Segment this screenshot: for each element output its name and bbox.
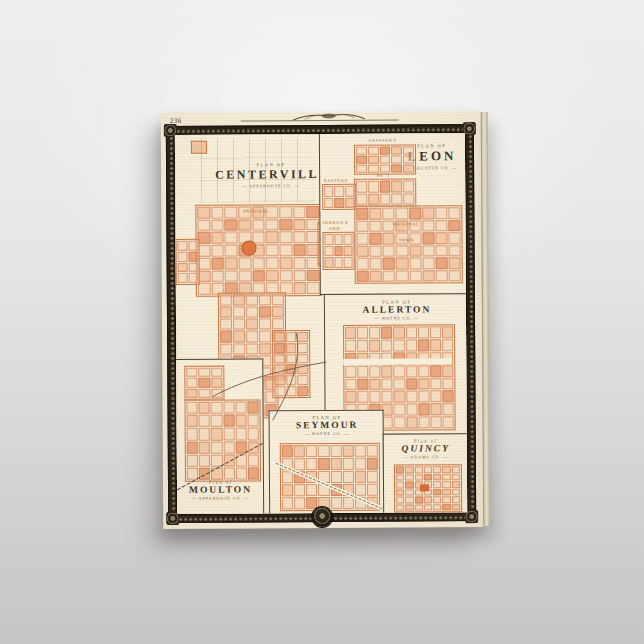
town-block — [325, 257, 334, 268]
town-block — [422, 207, 434, 219]
town-block — [452, 489, 460, 496]
town-block — [393, 327, 404, 339]
town-block — [422, 270, 434, 282]
town-block — [357, 378, 368, 390]
town-block — [406, 326, 417, 338]
town-block — [396, 270, 408, 282]
town-block — [220, 319, 232, 330]
town-block — [396, 489, 404, 496]
town-block — [403, 155, 414, 163]
town-block — [274, 343, 285, 353]
town-block — [286, 343, 297, 353]
county-label: APPANOOSE CO. — [215, 183, 327, 189]
town-block — [418, 404, 429, 416]
town-block — [211, 428, 222, 440]
town-block — [280, 244, 293, 256]
town-block — [357, 270, 369, 282]
town-block — [211, 245, 224, 257]
allerton-title: PLAN OF ALLERTON WAYNE CO. — [345, 299, 449, 321]
town-block — [259, 343, 271, 354]
town-block — [406, 391, 417, 403]
town-block — [356, 208, 368, 220]
town-block — [430, 339, 441, 351]
town-block — [369, 327, 380, 339]
town-block — [382, 365, 393, 377]
town-block — [225, 219, 238, 231]
town-block — [233, 294, 245, 305]
town-block — [294, 445, 305, 457]
town-block — [369, 340, 380, 352]
town-block — [370, 270, 382, 282]
town-block — [211, 219, 224, 231]
product-photo-backdrop: { "colors": { "paper": "#f3ecd6", "plat_… — [0, 0, 644, 644]
town-block — [448, 245, 460, 257]
town-block — [422, 245, 434, 257]
town-block — [318, 445, 329, 457]
town-block — [370, 378, 381, 390]
town-block — [343, 471, 354, 483]
town-block — [342, 458, 353, 470]
town-name: QUINCY — [388, 443, 464, 453]
panel-leon: PLAN OF LEON DECATUR CO. SHAFFER'S No. 1… — [319, 133, 466, 295]
town-block — [297, 343, 308, 353]
town-block — [335, 186, 344, 197]
plat-grid-centerville-west — [176, 239, 200, 285]
town-block — [392, 181, 403, 193]
town-block — [409, 207, 421, 219]
town-block — [424, 466, 432, 473]
town-block — [380, 181, 391, 193]
town-block — [330, 471, 341, 483]
town-block — [187, 428, 198, 440]
town-block — [248, 454, 259, 466]
town-block — [294, 471, 305, 483]
town-block — [433, 504, 441, 511]
town-block — [382, 378, 393, 390]
town-block — [334, 257, 343, 268]
town-block — [442, 403, 453, 415]
town-block — [247, 428, 258, 440]
town-block — [342, 445, 353, 457]
town-block — [396, 497, 404, 504]
town-block — [178, 262, 188, 272]
town-block — [418, 365, 429, 377]
town-block — [452, 504, 460, 511]
addition-label: SHAFFER'S — [354, 137, 412, 142]
town-block — [307, 270, 320, 282]
plat-grid-leon-original-town — [354, 205, 462, 284]
town-block — [259, 294, 271, 305]
town-block — [199, 415, 210, 427]
town-block — [235, 441, 246, 453]
town-block — [448, 207, 460, 219]
plat-grid-leon-eastern — [322, 184, 356, 210]
town-block — [318, 484, 329, 496]
town-block — [343, 497, 354, 509]
town-block — [282, 445, 293, 457]
town-block — [266, 219, 279, 231]
town-block — [442, 474, 450, 481]
town-block — [324, 197, 333, 208]
town-block — [430, 391, 441, 403]
town-block — [235, 428, 246, 440]
town-block — [324, 186, 333, 197]
town-block — [298, 375, 309, 385]
town-block — [394, 417, 405, 429]
town-block — [345, 365, 356, 377]
town-block — [358, 391, 369, 403]
addition-label: JORDAN'S — [320, 220, 350, 225]
town-block — [449, 270, 461, 282]
town-block — [442, 339, 453, 351]
town-block — [415, 496, 423, 503]
town-block — [381, 339, 392, 351]
town-block — [187, 441, 198, 453]
town-block — [199, 441, 210, 453]
town-block — [380, 165, 391, 173]
town-block — [239, 257, 252, 269]
town-block — [396, 207, 408, 219]
town-block — [330, 458, 341, 470]
town-block — [286, 365, 297, 375]
town-block — [246, 294, 258, 305]
town-block — [186, 368, 197, 377]
town-block — [368, 193, 379, 205]
town-block — [280, 270, 293, 282]
town-block — [442, 466, 450, 473]
town-block — [248, 441, 259, 453]
town-block — [294, 484, 305, 496]
town-block — [220, 307, 232, 318]
town-block — [238, 219, 251, 231]
town-block — [396, 504, 404, 511]
town-block — [430, 365, 441, 377]
town-block — [306, 497, 317, 509]
town-block — [211, 270, 224, 282]
town-block — [344, 234, 353, 245]
town-block — [187, 468, 198, 480]
town-block — [367, 458, 378, 470]
public-square-circle — [242, 240, 257, 255]
town-block — [286, 376, 297, 386]
town-block — [442, 391, 453, 403]
town-block — [345, 340, 356, 352]
town-block — [391, 156, 402, 164]
town-block — [239, 270, 252, 282]
town-block — [382, 391, 393, 403]
town-block — [435, 270, 447, 282]
town-block — [246, 307, 258, 318]
town-block — [307, 282, 320, 294]
town-block — [368, 147, 379, 155]
town-block — [368, 156, 379, 164]
town-block — [211, 257, 224, 269]
town-block — [433, 496, 441, 503]
town-block — [442, 416, 453, 428]
town-block — [225, 257, 238, 269]
town-block — [188, 252, 198, 262]
public-square-block — [420, 484, 429, 491]
town-block — [435, 257, 447, 269]
town-block — [433, 481, 441, 488]
town-block — [409, 270, 421, 282]
town-block — [367, 471, 378, 483]
town-block — [383, 208, 395, 220]
town-block — [356, 181, 367, 193]
town-block — [403, 180, 414, 192]
town-block — [197, 219, 210, 231]
addition-label: TOWN — [354, 237, 458, 243]
atlas-map-page: 236 PLAN OF CENTERVILLE APPANOOSE C — [161, 111, 484, 529]
town-block — [248, 467, 259, 479]
town-block — [223, 402, 234, 414]
town-block — [424, 496, 432, 503]
town-block — [383, 258, 395, 270]
town-block — [199, 368, 210, 377]
town-block — [306, 484, 317, 496]
town-block — [252, 257, 265, 269]
town-block — [199, 454, 210, 466]
town-block — [368, 181, 379, 193]
town-block — [266, 270, 279, 282]
town-block — [418, 378, 429, 390]
town-block — [220, 295, 232, 306]
town-block — [272, 319, 284, 330]
town-block — [394, 378, 405, 390]
town-block — [199, 468, 210, 480]
town-block — [370, 258, 382, 270]
town-block — [345, 391, 356, 403]
town-block — [211, 368, 222, 377]
town-block — [442, 481, 450, 488]
town-block — [178, 252, 188, 262]
town-block — [380, 193, 391, 205]
town-block — [252, 219, 265, 231]
plat-grid-leon-shaffers — [354, 144, 416, 174]
town-block — [355, 458, 366, 470]
town-name: SEYMOUR — [278, 420, 377, 431]
town-block — [369, 365, 380, 377]
addition-label: EASTERN — [320, 178, 352, 183]
town-block — [298, 365, 309, 375]
town-block — [178, 273, 188, 283]
town-block — [274, 365, 285, 375]
town-block — [235, 401, 246, 413]
town-name: CENTERVILLE — [215, 167, 327, 183]
town-block — [188, 273, 198, 283]
town-block — [306, 445, 317, 457]
town-block — [324, 234, 333, 245]
town-block — [394, 404, 405, 416]
town-block — [282, 471, 293, 483]
town-block — [318, 471, 329, 483]
town-block — [187, 454, 198, 466]
town-block — [381, 327, 392, 339]
town-block — [357, 327, 368, 339]
town-block — [355, 445, 366, 457]
town-block — [235, 415, 246, 427]
town-block — [233, 319, 245, 330]
town-block — [188, 262, 198, 272]
town-block — [223, 441, 234, 453]
town-block — [430, 326, 441, 338]
town-block — [452, 481, 460, 488]
town-block — [396, 474, 404, 481]
town-block — [433, 474, 441, 481]
town-block — [414, 466, 422, 473]
town-block — [306, 458, 317, 470]
town-block — [279, 219, 292, 231]
town-block — [452, 496, 460, 503]
addition-label: ADD. — [320, 226, 350, 231]
town-block — [391, 147, 402, 155]
addition-label: No. 1 — [354, 172, 412, 177]
town-block — [293, 257, 306, 269]
town-block — [280, 257, 293, 269]
town-block — [367, 445, 378, 457]
town-block — [236, 467, 247, 479]
town-block — [330, 445, 341, 457]
town-block — [266, 244, 279, 256]
town-block — [403, 146, 414, 154]
town-block — [405, 466, 413, 473]
town-block — [223, 428, 234, 440]
town-block — [406, 378, 417, 390]
town-block — [343, 484, 354, 496]
town-block — [298, 386, 309, 396]
town-block — [293, 244, 306, 256]
town-block — [233, 307, 245, 318]
town-block — [282, 484, 293, 496]
town-block — [286, 386, 297, 396]
town-block — [405, 474, 413, 481]
town-block — [178, 241, 188, 251]
town-block — [368, 165, 379, 173]
town-block — [442, 365, 453, 377]
county-label: APPANOOSE CO. — [181, 495, 260, 500]
town-block — [430, 416, 441, 428]
town-block — [392, 193, 403, 205]
town-block — [282, 497, 293, 509]
town-block — [266, 232, 279, 244]
town-block — [246, 331, 258, 342]
town-block — [370, 245, 382, 257]
town-block — [406, 365, 417, 377]
town-block — [252, 270, 265, 282]
plat-grid-seymour — [280, 443, 380, 512]
town-block — [186, 388, 197, 397]
town-block — [418, 339, 429, 351]
town-block — [430, 404, 441, 416]
town-block — [211, 232, 224, 244]
engraved-flourish-icon — [289, 110, 369, 124]
plat-grid-moulton-main — [184, 399, 260, 481]
town-block — [394, 365, 405, 377]
town-block — [259, 331, 271, 342]
town-block — [325, 246, 334, 257]
town-block — [345, 197, 354, 208]
town-block — [357, 258, 369, 270]
town-block — [247, 401, 258, 413]
town-block — [331, 497, 342, 509]
town-block — [380, 147, 391, 155]
town-block — [220, 343, 232, 354]
town-block — [442, 489, 450, 496]
plat-grid-centerville-main — [195, 204, 322, 297]
panel-quincy: Plan of QUINCY ADAMS CO. — [383, 433, 467, 513]
town-block — [186, 378, 197, 387]
canvas-print-map: 236 PLAN OF CENTERVILLE APPANOOSE C — [161, 111, 491, 529]
town-block — [279, 232, 292, 244]
town-block — [266, 257, 279, 269]
town-block — [334, 246, 343, 257]
town-block — [357, 340, 368, 352]
town-block — [448, 257, 460, 269]
town-block — [211, 415, 222, 427]
town-block — [391, 165, 402, 173]
town-block — [403, 164, 414, 172]
town-block — [294, 497, 305, 509]
town-block — [211, 378, 222, 387]
town-block — [274, 386, 285, 396]
town-block — [293, 282, 306, 294]
frame-medallion-icon — [312, 507, 332, 527]
town-block — [233, 331, 245, 342]
town-block — [396, 467, 404, 474]
panel-seymour: PLAN OF SEYMOUR WAYNE CO. — [269, 410, 385, 514]
town-block — [356, 193, 367, 205]
centerville-title: PLAN OF CENTERVILLE APPANOOSE CO. — [215, 162, 327, 189]
map-plate-area: PLAN OF CENTERVILLE APPANOOSE CO. ORIGIN… — [175, 133, 467, 514]
moulton-title: Plan of MOULTON APPANOOSE CO. — [181, 479, 260, 500]
town-block — [394, 391, 405, 403]
town-block — [396, 257, 408, 269]
town-block — [246, 319, 258, 330]
town-block — [220, 331, 232, 342]
town-block — [235, 454, 246, 466]
plat-grid-centerville-mid — [272, 330, 310, 398]
town-block — [355, 484, 366, 496]
plat-grid-leon-jordans — [322, 232, 354, 270]
plat-grid-leon-no1 — [354, 178, 416, 206]
town-block — [345, 186, 354, 197]
town-block — [247, 415, 258, 427]
town-block — [199, 428, 210, 440]
county-label: WAYNE CO. — [345, 315, 449, 321]
town-block — [418, 326, 429, 338]
town-block — [442, 326, 453, 338]
town-block — [274, 354, 285, 364]
town-block — [435, 207, 447, 219]
town-block — [335, 197, 344, 208]
town-block — [199, 378, 210, 387]
town-block — [282, 458, 293, 470]
town-block — [424, 474, 432, 481]
town-block — [433, 466, 441, 473]
town-block — [403, 193, 414, 205]
town-block — [443, 496, 451, 503]
town-block — [357, 365, 368, 377]
town-block — [286, 354, 297, 364]
town-block — [356, 165, 367, 173]
town-block — [272, 306, 284, 317]
town-block — [298, 354, 309, 364]
town-block — [318, 458, 329, 470]
town-block — [293, 270, 306, 282]
town-block — [199, 402, 210, 414]
town-block — [186, 402, 197, 414]
town-block — [422, 257, 434, 269]
